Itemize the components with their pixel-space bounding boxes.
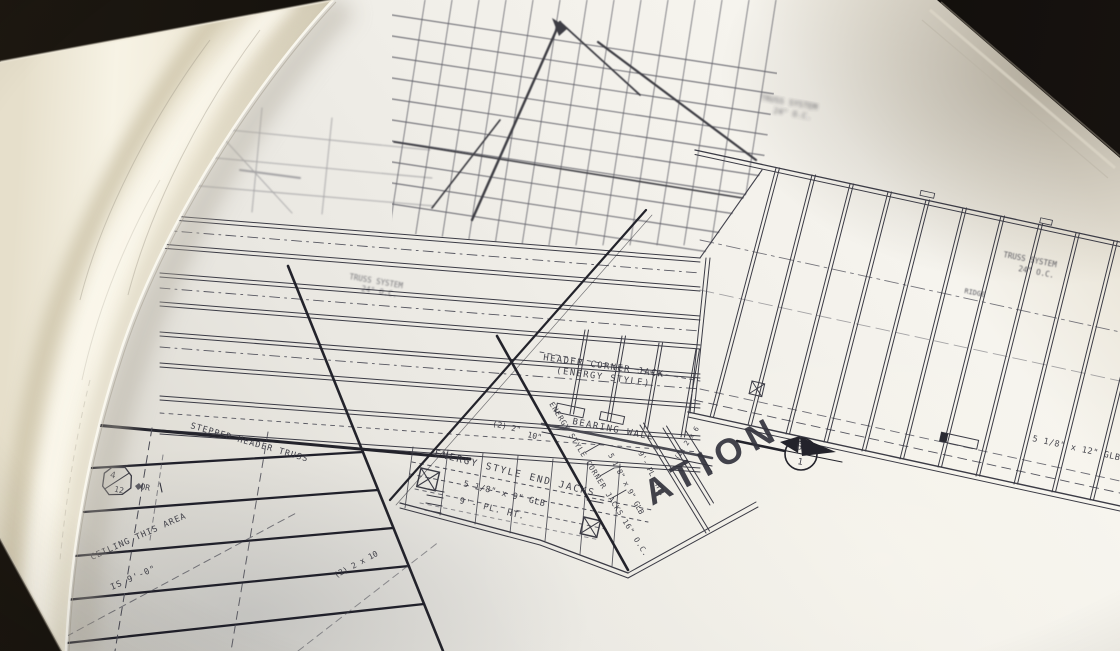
label-or: OR xyxy=(140,482,151,493)
blueprint-photo: 4 12 B 1 ATION STEPPED HEADER TRUSS HEAD… xyxy=(0,0,1120,651)
